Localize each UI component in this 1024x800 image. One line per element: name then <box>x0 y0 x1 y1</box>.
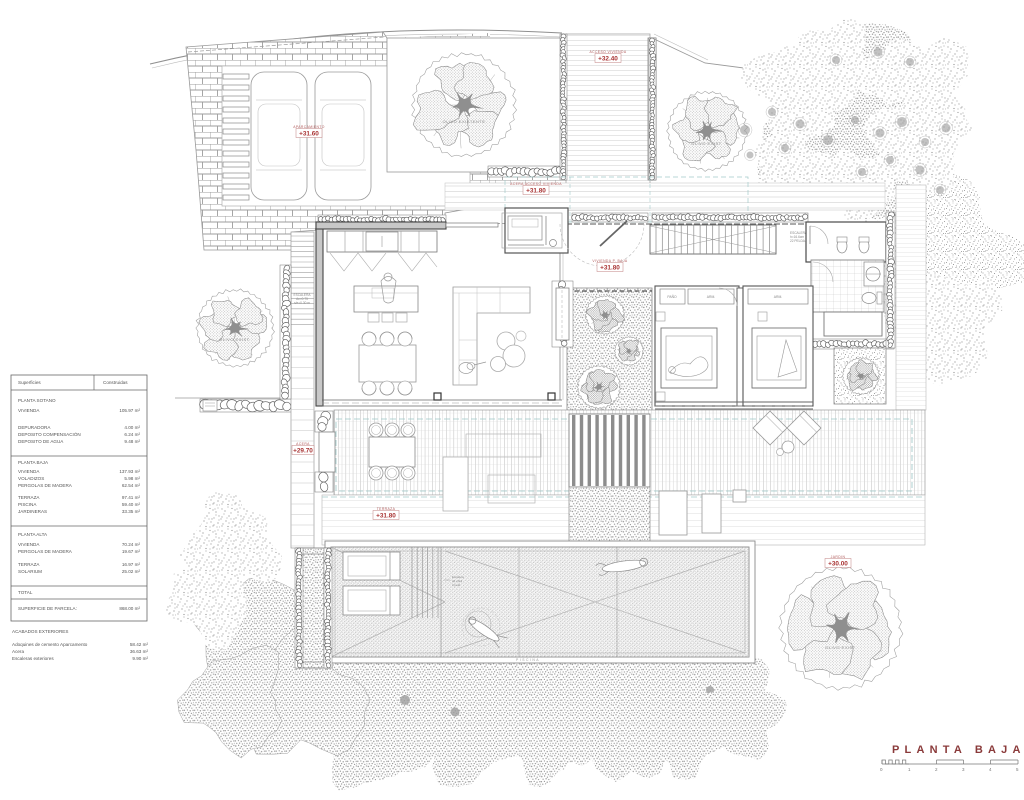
svg-text:105.97 m²: 105.97 m² <box>119 408 140 413</box>
svg-text:+31.80: +31.80 <box>376 513 396 520</box>
svg-text:16.97 m²: 16.97 m² <box>122 562 141 567</box>
svg-text:+31.60: +31.60 <box>299 131 319 138</box>
svg-text:VIVIENDA: VIVIENDA <box>18 408 40 413</box>
svg-text:PLANTA BAJA: PLANTA BAJA <box>892 744 1024 756</box>
svg-text:TOTAL: TOTAL <box>18 590 33 595</box>
svg-text:PLANTA BAJA: PLANTA BAJA <box>18 460 49 465</box>
svg-text:TERRAZA: TERRAZA <box>18 562 40 567</box>
svg-text:ACABADOS EXTERIORES: ACABADOS EXTERIORES <box>12 629 68 634</box>
svg-text:97.41 m²: 97.41 m² <box>122 495 141 500</box>
svg-text:+30.00: +30.00 <box>828 561 848 568</box>
svg-text:9.90 m²: 9.90 m² <box>132 656 148 661</box>
svg-text:+31.80: +31.80 <box>600 265 620 272</box>
svg-text:PERGOLAS DE MADERA: PERGOLAS DE MADERA <box>18 549 73 554</box>
svg-text:OLIVO EXIST.: OLIVO EXIST. <box>691 141 723 146</box>
svg-text:PERGOLAS DE MADERA: PERGOLAS DE MADERA <box>18 483 73 488</box>
svg-text:OLIVO EXIST.: OLIVO EXIST. <box>825 645 857 650</box>
svg-text:62.54 m²: 62.54 m² <box>122 483 141 488</box>
svg-text:25.02 m²: 25.02 m² <box>122 569 141 574</box>
svg-text:TERRAZA: TERRAZA <box>18 495 40 500</box>
svg-text:OLIVO EXIST.: OLIVO EXIST. <box>219 337 251 342</box>
svg-text:SUPERFICIE DE PARCELA:: SUPERFICIE DE PARCELA: <box>18 606 77 611</box>
svg-text:+31.80: +31.80 <box>526 188 546 195</box>
svg-text:PAÑO: PAÑO <box>667 294 677 299</box>
svg-text:OLIVO EXISTENTE: OLIVO EXISTENTE <box>442 119 485 124</box>
svg-text:+32.40: +32.40 <box>598 56 618 63</box>
svg-text:DEPOSITO COMPENSACIÓN: DEPOSITO COMPENSACIÓN <box>18 431 81 437</box>
svg-text:3 peld.: 3 peld. <box>452 583 461 587</box>
svg-text:ARM.: ARM. <box>774 295 783 299</box>
svg-text:Adoquines de cemento Aparcamen: Adoquines de cemento Aparcamento <box>12 642 88 647</box>
svg-text:JARDINERAS: JARDINERAS <box>18 509 47 514</box>
svg-text:58.42 m²: 58.42 m² <box>130 642 149 647</box>
svg-text:33.35 m²: 33.35 m² <box>122 509 141 514</box>
svg-text:Acera: Acera <box>12 649 24 654</box>
svg-text:VIVIENDA: VIVIENDA <box>18 542 40 547</box>
svg-text:DEPOSITO DE AGUA: DEPOSITO DE AGUA <box>18 439 64 444</box>
svg-text:SOLARIUM: SOLARIUM <box>18 569 42 574</box>
svg-text:PLANTA SOTANO: PLANTA SOTANO <box>18 398 56 403</box>
svg-text:4.00 m²: 4.00 m² <box>124 425 140 430</box>
svg-text:868.00 m²: 868.00 m² <box>119 606 140 611</box>
svg-text:9.48 m²: 9.48 m² <box>124 439 140 444</box>
svg-text:59.40 m²: 59.40 m² <box>122 502 141 507</box>
svg-text:DEPURADORA: DEPURADORA <box>18 425 51 430</box>
svg-text:s/e=0.30 m: s/e=0.30 m <box>294 301 310 305</box>
svg-text:VIVIENDA: VIVIENDA <box>18 469 40 474</box>
svg-text:6.24 m²: 6.24 m² <box>124 432 140 437</box>
svg-text:36.63 m²: 36.63 m² <box>130 649 149 654</box>
svg-text:70.24 m²: 70.24 m² <box>122 542 141 547</box>
svg-text:+29.70: +29.70 <box>293 448 313 455</box>
svg-text:PISCINA: PISCINA <box>516 658 540 662</box>
svg-text:PLANTA ALTA: PLANTA ALTA <box>18 532 48 537</box>
svg-text:137.93 m²: 137.93 m² <box>119 469 140 474</box>
svg-text:PISCINA: PISCINA <box>18 502 37 507</box>
svg-text:Escaleras exteriores: Escaleras exteriores <box>12 656 54 661</box>
svg-text:VOLADIZOS: VOLADIZOS <box>18 476 44 481</box>
svg-text:19.67 m²: 19.67 m² <box>122 549 141 554</box>
svg-text:Superficies: Superficies <box>18 380 41 385</box>
svg-text:5.98 m²: 5.98 m² <box>124 476 140 481</box>
svg-text:22 PELDA.: 22 PELDA. <box>790 239 806 243</box>
svg-text:ARM.: ARM. <box>707 295 716 299</box>
svg-text:Construidas: Construidas <box>103 380 128 385</box>
